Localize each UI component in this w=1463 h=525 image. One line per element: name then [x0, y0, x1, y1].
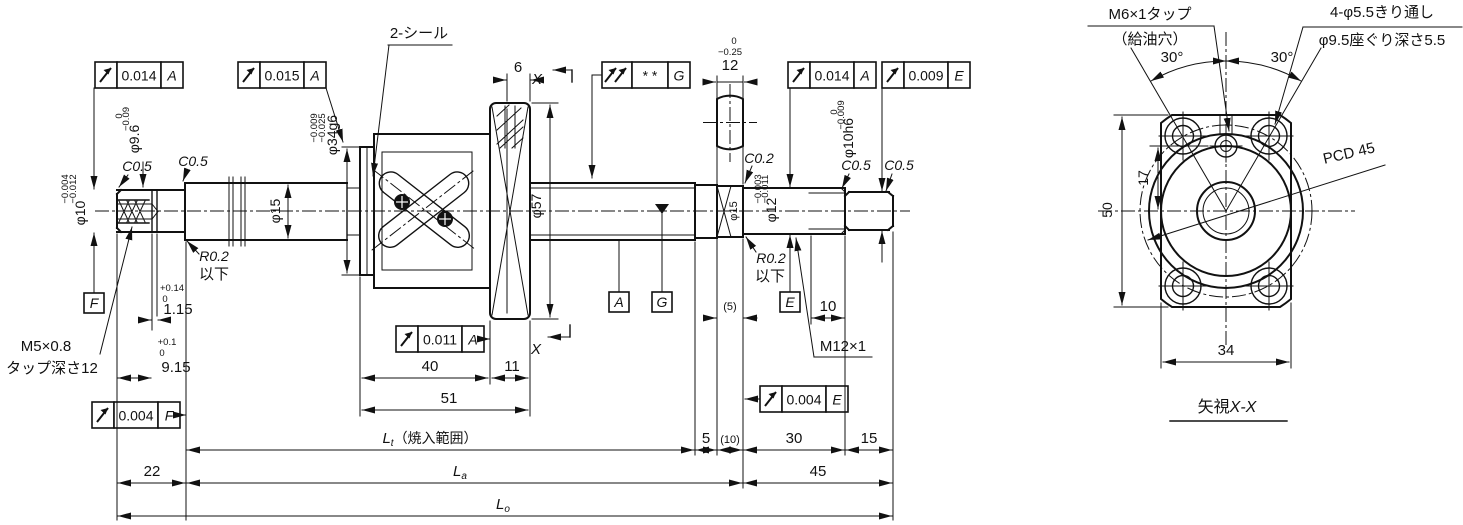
fcf6-datum: A	[467, 332, 477, 348]
label-lo: Lo	[496, 496, 510, 515]
fillet-right-ika: 以下	[755, 268, 785, 285]
fillet-note-right: R0.2 以下	[746, 237, 786, 285]
fcf8-datum: E	[832, 392, 842, 408]
fcf7-datum: F	[165, 408, 175, 424]
fcf2-value: 0.015	[264, 68, 299, 84]
section-x-lower: X	[530, 341, 542, 358]
dim-45: 45	[810, 463, 827, 480]
phi34-tol-l: −0.025	[317, 113, 328, 142]
dim-b15: 15	[861, 430, 878, 447]
datum-box-e: E	[785, 294, 795, 310]
view-label: 矢視X-X	[1170, 398, 1287, 421]
datum-box-g: G	[657, 294, 668, 310]
dim-b5: 5	[702, 430, 710, 447]
angle-30-left: 30°	[1161, 49, 1184, 66]
view-xx-label: 矢視X-X	[1198, 398, 1258, 416]
fcf4-datum: A	[859, 68, 869, 84]
section-arrow-lower: X	[530, 325, 570, 358]
tap-note-line2: タップ深さ12	[6, 360, 98, 377]
datum-target-g: G	[652, 204, 672, 312]
tap-note-left: M5×0.8 タップ深さ12	[6, 227, 132, 377]
groove-pos-tol-l: 0	[159, 348, 164, 359]
seal-note-text: 2-シール	[390, 25, 448, 42]
fcf4-value: 0.014	[814, 68, 849, 84]
bolt-note-line1: 4-φ5.5きり通し	[1330, 4, 1434, 21]
fcf-runout-phi10h6: 0.009 E	[882, 62, 970, 88]
fcf-runout-m12: 0.004 E	[745, 386, 848, 412]
pcd-label: PCD 45	[1321, 139, 1376, 167]
phi10-tol-l: −0.012	[68, 174, 79, 203]
dim-phi10h6: φ10h6 0 −0.009	[829, 88, 882, 262]
chamfer-c05-left1: C0.5	[122, 158, 152, 174]
dim-b10: (10)	[720, 434, 740, 446]
seal-note: 2-シール	[373, 25, 452, 176]
chamfer-c05-right1: C0.5	[841, 157, 871, 173]
dim-6: 6	[514, 59, 522, 76]
datum-box-a: A	[613, 294, 623, 310]
dim-34-label: 34	[1218, 342, 1235, 359]
datum-target-a: A	[609, 241, 629, 312]
fcf2-datum: A	[309, 68, 319, 84]
fillet-left-ika: 以下	[199, 266, 229, 283]
fcf3-value: * *	[643, 68, 658, 84]
label-phi15: φ15	[267, 198, 283, 223]
dim-groove: +0.14 0 1.15 +0.1 0 9.15	[118, 234, 193, 378]
dim-17-label: 17	[1135, 170, 1151, 186]
groove-pos-tol-u: +0.1	[158, 337, 177, 348]
fillet-note-left: R0.2 以下	[187, 241, 229, 283]
tap-note-line1: M5×0.8	[21, 338, 71, 355]
side-view: 12 0 −0.25 φ10 −0.004 −0.012 F φ9.6 0 −0…	[6, 25, 970, 520]
dim-50-label: 50	[1099, 202, 1115, 218]
dim-flats-tol-lower: −0.25	[718, 47, 742, 58]
fillet-left-r02: R0.2	[199, 248, 229, 264]
dim-1-15: 1.15	[163, 301, 192, 318]
ballscrew-technical-drawing: 12 0 −0.25 φ10 −0.004 −0.012 F φ9.6 0 −0…	[0, 0, 1463, 525]
drawing-canvas: 12 0 −0.25 φ10 −0.004 −0.012 F φ9.6 0 −0…	[0, 0, 1463, 525]
dim-phi57: φ57	[528, 103, 558, 319]
dim-40: 40	[422, 358, 439, 375]
phi12-tol-l: −0.011	[760, 175, 771, 204]
fcf1-value: 0.014	[121, 68, 156, 84]
dim-phi10: φ10 −0.004 −0.012 F	[60, 88, 104, 313]
dim-11: 11	[504, 358, 520, 375]
m12-label: M12×1	[820, 338, 866, 355]
fcf1-datum: A	[166, 68, 176, 84]
angle-30-right: 30°	[1271, 49, 1294, 66]
fcf7-value: 0.004	[118, 408, 153, 424]
fillet-right-r02: R0.2	[756, 250, 786, 266]
groove-w-tol-u: +0.14	[160, 283, 184, 294]
fcf8-value: 0.004	[786, 392, 821, 408]
fcf6-value: 0.011	[423, 332, 457, 348]
dim-10: 10	[820, 298, 837, 315]
chamfer-c02: C0.2	[744, 150, 774, 166]
fcf5-value: 0.009	[908, 68, 943, 84]
oil-tap-line2: （給油穴）	[1112, 31, 1187, 48]
dim-51: 51	[441, 390, 458, 407]
dim-flats-12: 12	[722, 57, 739, 74]
dim-thread-10: 10	[811, 236, 844, 324]
bolt-hole-note: 4-φ5.5きり通し φ9.5座ぐり深さ5.5	[1275, 4, 1462, 124]
dim-row-lo: Lo	[117, 496, 893, 516]
oil-hole-m6	[1210, 115, 1242, 162]
label-phi57: φ57	[528, 193, 544, 218]
dim-22: 22	[144, 463, 161, 480]
dim-flats-tol-upper: 0	[731, 36, 736, 47]
dim-row-la: 22 La 45	[117, 463, 893, 483]
section-x-upper: X	[531, 71, 543, 88]
dim-b30: 30	[786, 430, 803, 447]
dim-relief-5: (5)	[704, 301, 757, 318]
phi9-6-tol-l: −0.09	[121, 107, 132, 131]
fcf-runout-left-end: 0.004 F	[92, 402, 186, 428]
label-lt: Lt（焼入範囲）	[382, 430, 477, 449]
dim-row-lt: Lt（焼入範囲） 5 (10) 30 15	[186, 430, 893, 450]
fcf-runout-thread: * * G	[592, 62, 690, 178]
bolt-note-line2: φ9.5座ぐり深さ5.5	[1319, 32, 1445, 49]
flange-bolt-section	[497, 105, 523, 148]
dim-5-paren: (5)	[723, 301, 736, 313]
end-view: 30° 30° M6×1タップ （給油穴） 4-φ5.5きり通し φ9.5座ぐり…	[1088, 4, 1462, 421]
chamfer-c05-right2: C0.5	[884, 157, 914, 173]
chamfer-c05-left2: C0.5	[178, 153, 208, 169]
fcf3-datum: G	[674, 68, 685, 84]
oil-tap-note: M6×1タップ （給油穴）	[1088, 6, 1229, 131]
phi10h6-tol-l: −0.009	[836, 100, 847, 129]
label-phi15-relief: φ15	[728, 201, 740, 220]
fcf-runout-nut: 0.011 A	[396, 326, 490, 352]
fcf-runout-phi12: 0.014 A	[788, 62, 876, 88]
oil-tap-line1: M6×1タップ	[1109, 6, 1192, 23]
datum-box-f: F	[90, 295, 100, 311]
label-la: La	[453, 463, 467, 482]
section-arrow-upper: X	[531, 70, 572, 88]
fcf-runout-left-journal: 0.014 A	[95, 62, 183, 88]
dim-phi34g6: φ34g6 −0.009 −0.025	[309, 113, 360, 275]
fcf5-datum: E	[954, 68, 964, 84]
